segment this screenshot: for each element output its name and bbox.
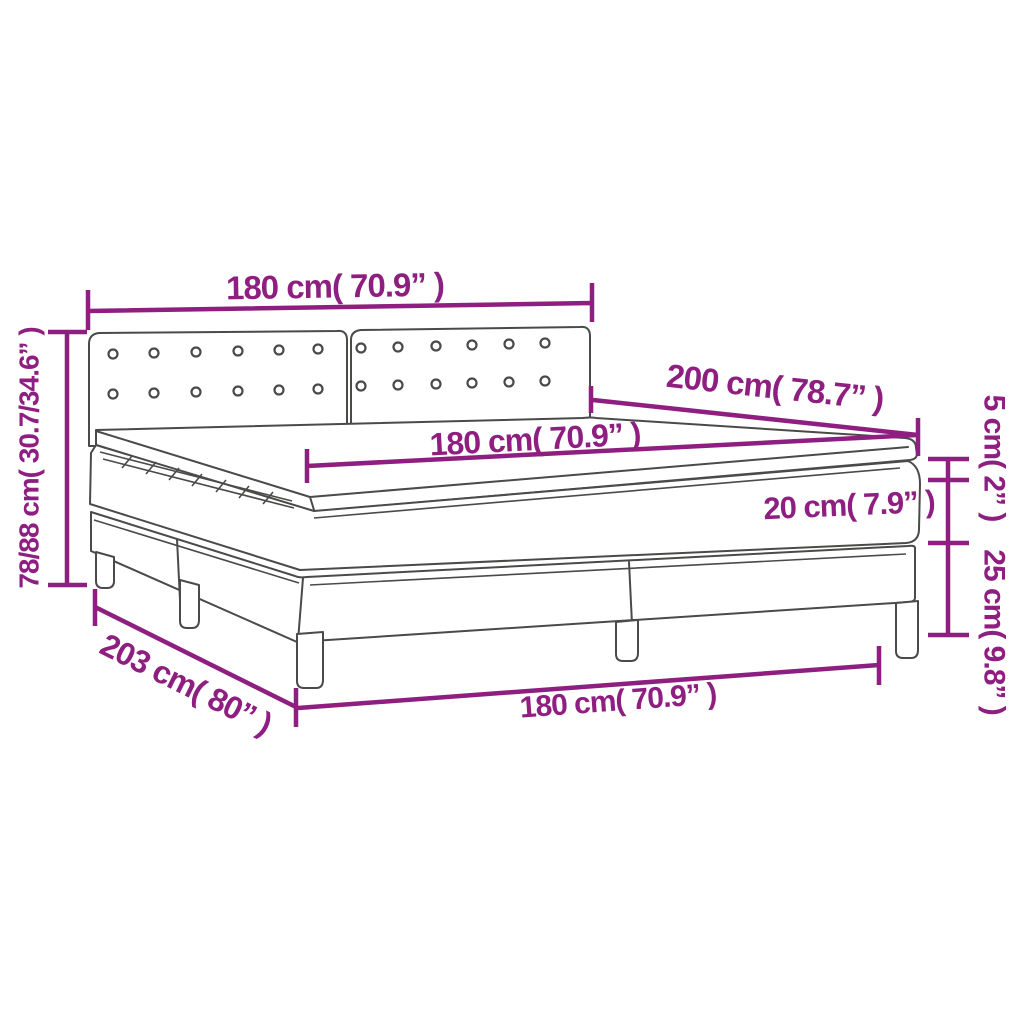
dim-right-heights-line — [928, 459, 969, 635]
headboard-button — [357, 382, 366, 391]
headboard-button — [394, 381, 403, 390]
headboard-button — [234, 387, 243, 396]
dim-total-height-label: 78/88 cm( 30.7/34.6” ) — [14, 327, 45, 588]
headboard-button — [394, 343, 403, 352]
diagram-canvas: 180 cm( 70.9” ) 78/88 cm( 30.7/34.6” ) 2… — [0, 0, 1024, 1024]
dim-bed-depth-label: 200 cm( 78.7” ) — [665, 357, 886, 417]
dim-topper-height-label: 5 cm( 2” ) — [978, 395, 1011, 522]
headboard-button — [314, 385, 323, 394]
dim-headboard-width: 180 cm( 70.9” ) — [88, 266, 592, 330]
bed-leg — [180, 580, 199, 628]
bed-leg — [896, 601, 918, 658]
bed-dimension-diagram: 180 cm( 70.9” ) 78/88 cm( 30.7/34.6” ) 2… — [0, 0, 1024, 1024]
headboard-button — [275, 386, 284, 395]
headboard-button — [432, 380, 441, 389]
headboard-button — [275, 346, 284, 355]
headboard-button — [150, 389, 159, 398]
dim-headboard-width-label: 180 cm( 70.9” ) — [226, 266, 445, 307]
headboard-button — [505, 378, 514, 387]
headboard-button — [468, 341, 477, 350]
headboard-button — [432, 342, 441, 351]
dim-total-height-line — [48, 332, 87, 585]
headboard-button — [541, 377, 550, 386]
headboard-button — [314, 345, 323, 354]
dim-bed-width-label: 180 cm( 70.9” ) — [519, 677, 718, 724]
dim-bed-width: 180 cm( 70.9” ) — [298, 646, 879, 725]
headboard-button — [505, 340, 514, 349]
dim-base-height-label: 25 cm( 9.8” ) — [978, 549, 1011, 714]
bed-leg — [616, 620, 638, 661]
headboard-button — [468, 379, 477, 388]
dim-total-height: 78/88 cm( 30.7/34.6” ) — [14, 327, 88, 588]
headboard-button — [192, 388, 201, 397]
headboard-button — [192, 348, 201, 357]
dim-right-heights: 5 cm( 2” ) 25 cm( 9.8” ) — [928, 395, 1011, 715]
headboard-button — [109, 350, 118, 359]
headboard-button — [150, 349, 159, 358]
headboard-button — [541, 339, 550, 348]
headboard-button — [109, 390, 118, 399]
headboard-button — [357, 344, 366, 353]
bed-leg — [96, 552, 114, 588]
bed-leg — [297, 632, 323, 688]
headboard-button — [234, 347, 243, 356]
dim-mattress-height-label: 20 cm( 7.9” ) — [763, 484, 936, 526]
